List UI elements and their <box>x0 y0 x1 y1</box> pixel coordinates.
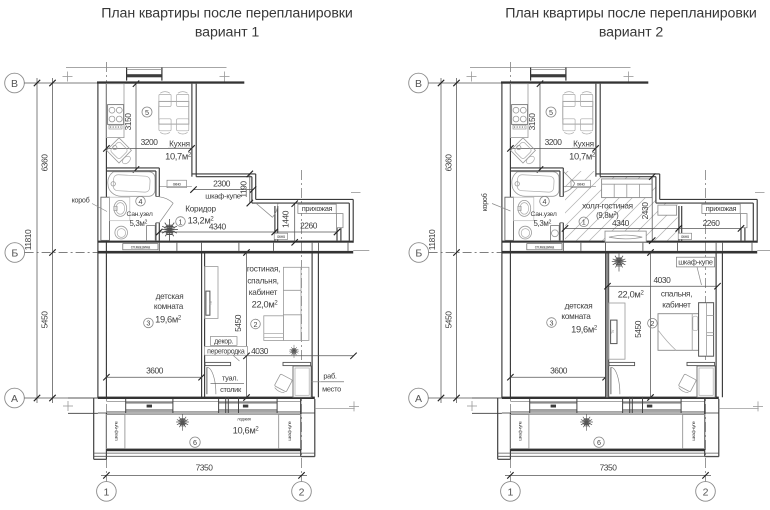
svg-text:2: 2 <box>650 319 654 328</box>
svg-text:раб.: раб. <box>323 372 337 381</box>
svg-text:22,0м2: 22,0м2 <box>252 299 279 309</box>
svg-text:10,6м2: 10,6м2 <box>233 426 260 436</box>
svg-text:13,2м2: 13,2м2 <box>188 215 215 225</box>
svg-text:место: место <box>322 385 341 394</box>
svg-text:детская: детская <box>565 302 593 311</box>
svg-text:1: 1 <box>179 217 183 226</box>
svg-text:22,0м2: 22,0м2 <box>618 290 645 300</box>
svg-text:кабинет: кабинет <box>249 288 278 297</box>
svg-text:декор.: декор. <box>214 339 233 346</box>
svg-text:перегородка: перегородка <box>207 348 245 355</box>
svg-text:детская: детская <box>156 292 184 301</box>
svg-text:вариант 1: вариант 1 <box>195 24 259 40</box>
svg-text:План квартиры после перепланир: План квартиры после перепланировки <box>101 5 352 21</box>
svg-text:4340: 4340 <box>209 222 227 232</box>
svg-text:4030: 4030 <box>653 275 671 285</box>
svg-text:холл-гостиная: холл-гостиная <box>582 201 633 210</box>
svg-text:Коридор: Коридор <box>185 204 216 213</box>
svg-text:1190: 1190 <box>238 181 248 198</box>
svg-text:3: 3 <box>550 318 554 327</box>
svg-text:спальня,: спальня, <box>247 277 278 286</box>
svg-text:5450: 5450 <box>633 320 643 338</box>
svg-text:шкаф-купе: шкаф-купе <box>205 192 240 201</box>
svg-text:короб: короб <box>72 195 90 204</box>
svg-text:шкаф-купе: шкаф-купе <box>678 258 713 267</box>
svg-text:гостиная,: гостиная, <box>247 264 280 273</box>
svg-text:19,6м2: 19,6м2 <box>155 314 182 324</box>
svg-text:вариант 2: вариант 2 <box>599 24 663 40</box>
svg-text:лоджия: лоджия <box>237 416 250 421</box>
svg-text:4340: 4340 <box>612 218 630 228</box>
svg-text:спальня,: спальня, <box>661 290 692 299</box>
svg-text:4030: 4030 <box>251 346 269 356</box>
svg-text:туал.: туал. <box>222 374 238 383</box>
svg-text:(9,8м2): (9,8м2) <box>596 211 619 220</box>
svg-text:2: 2 <box>254 320 258 329</box>
svg-text:столик: столик <box>220 385 242 394</box>
svg-text:комната: комната <box>561 312 591 321</box>
svg-text:короб: короб <box>480 193 489 211</box>
svg-text:кабинет: кабинет <box>662 301 691 310</box>
svg-text:1: 1 <box>582 218 586 227</box>
svg-text:комната: комната <box>154 302 184 311</box>
svg-text:2300: 2300 <box>213 179 231 189</box>
svg-text:1440: 1440 <box>281 210 291 228</box>
svg-text:19,6м2: 19,6м2 <box>571 325 598 335</box>
svg-text:2260: 2260 <box>703 218 721 228</box>
svg-text:2430: 2430 <box>640 202 650 220</box>
svg-text:2260: 2260 <box>300 220 318 230</box>
svg-text:3: 3 <box>146 319 150 328</box>
svg-text:5450: 5450 <box>233 314 243 332</box>
svg-text:План квартиры после перепланир: План квартиры после перепланировки <box>505 5 756 21</box>
